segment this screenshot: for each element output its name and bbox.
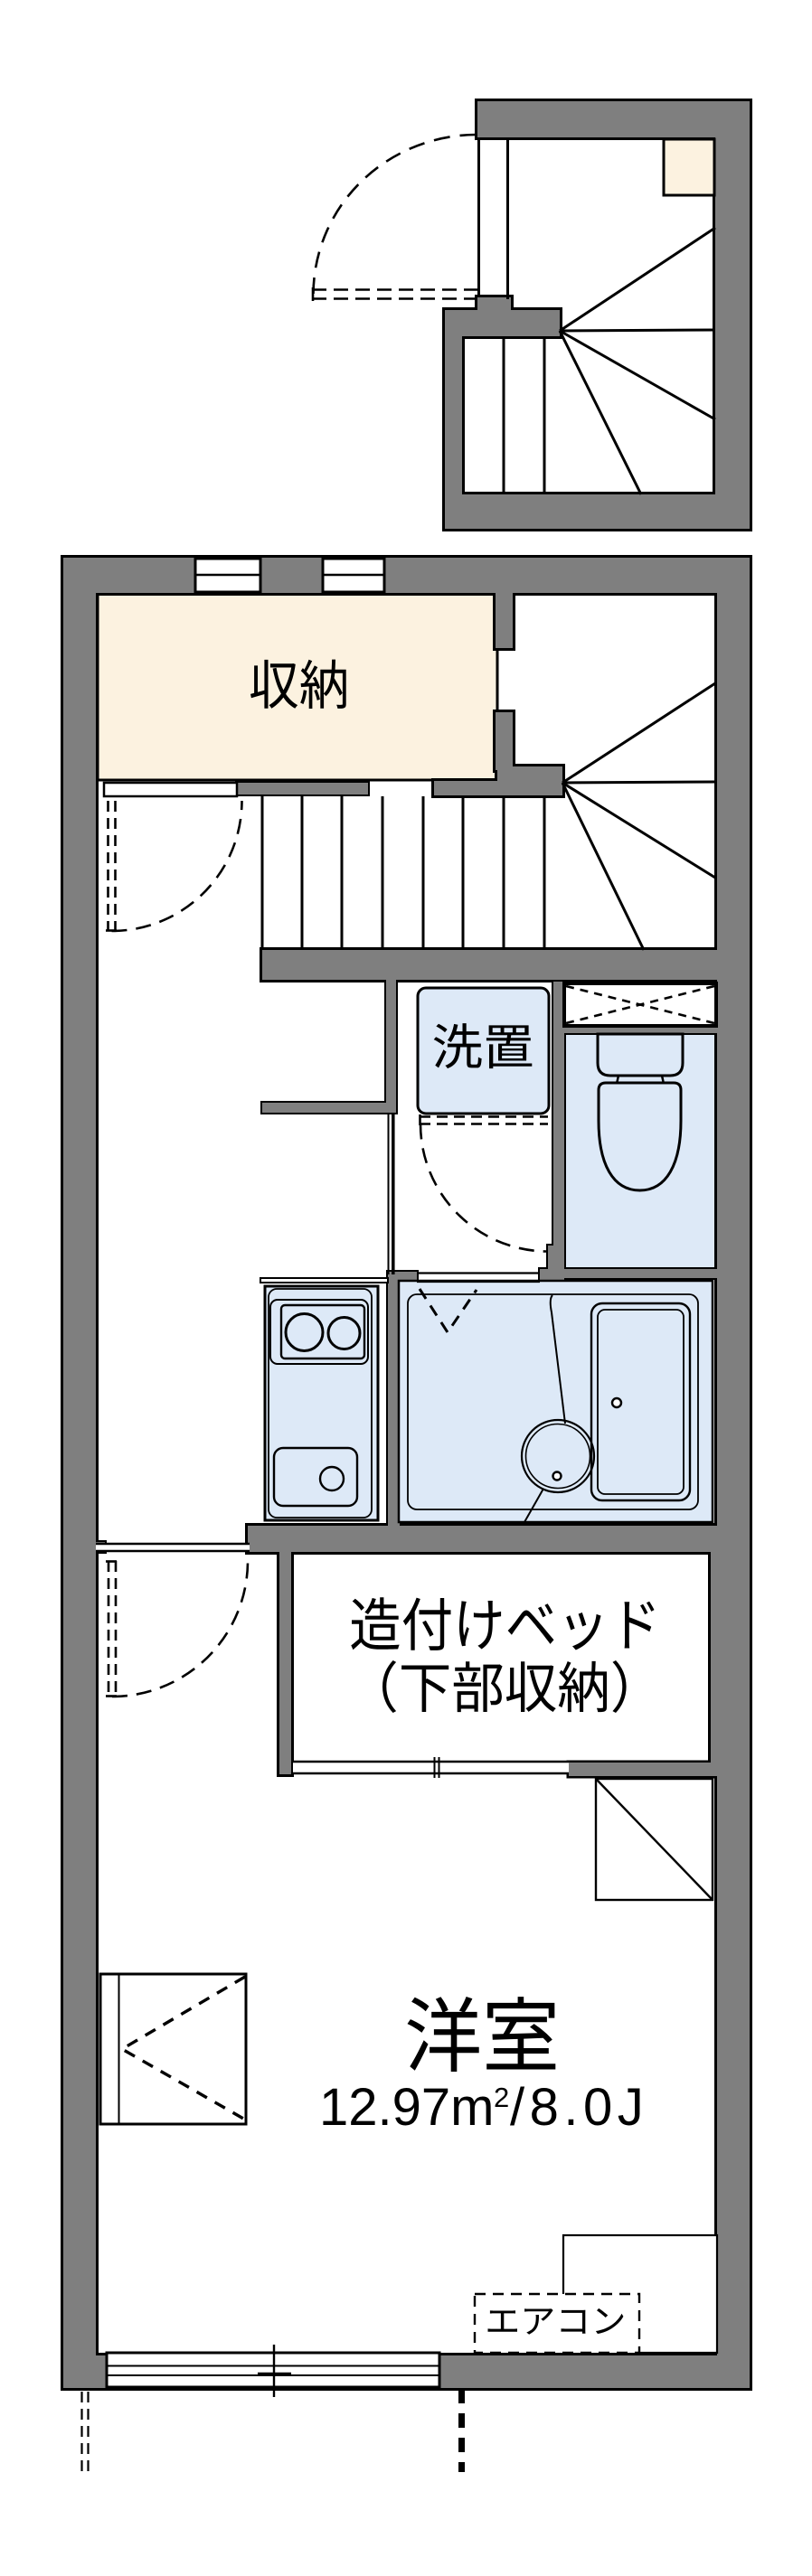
svg-text:2: 2 (494, 2082, 509, 2113)
svg-text:/8.0J: /8.0J (510, 2078, 648, 2137)
svg-text:12.97m: 12.97m (319, 2078, 494, 2137)
